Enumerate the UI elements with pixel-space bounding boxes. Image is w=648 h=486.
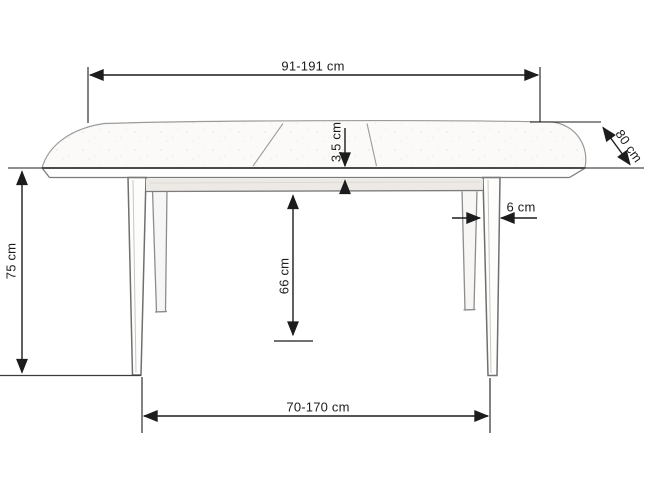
- table-dimension-drawing: 91-191 cm 80 cm 3,5 cm 6 cm 66 cm 75 cm …: [0, 0, 648, 486]
- table-top-front-face: [42, 168, 585, 178]
- table-back-legs: [153, 190, 478, 312]
- dim-label-base-span: 70-170 cm: [286, 400, 349, 415]
- dim-label-leg-width: 6 cm: [507, 200, 536, 215]
- dim-label-underframe-height: 66 cm: [277, 258, 292, 294]
- dim-label-top-thickness: 3,5 cm: [329, 122, 344, 162]
- table-apron: [146, 179, 483, 192]
- table-top-surface: [42, 121, 586, 168]
- table-front-legs: [128, 178, 500, 376]
- dim-top-length: [88, 67, 540, 123]
- dim-label-overall-height: 75 cm: [4, 243, 19, 279]
- dim-label-top-length: 91-191 cm: [281, 59, 344, 74]
